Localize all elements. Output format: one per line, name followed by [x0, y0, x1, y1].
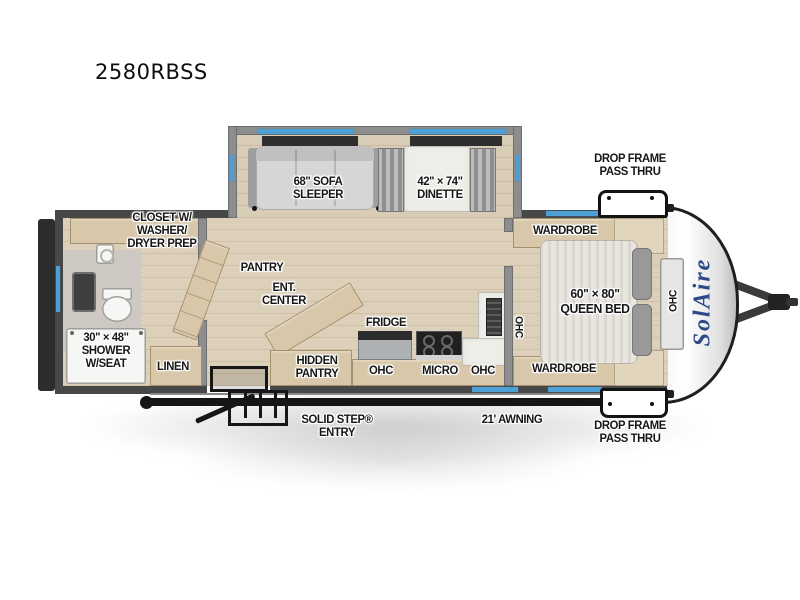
- pass-thru-bottom-dot-right: [650, 402, 654, 406]
- window-behind-sofa: [262, 136, 358, 146]
- slideout-window-side-left: [230, 155, 234, 181]
- rear-bumper: [38, 219, 55, 391]
- label-ohc-fridge: OHC: [369, 364, 393, 377]
- awning-rail-line: [150, 393, 640, 395]
- dinette-bench-right: [470, 148, 496, 212]
- label-ohc-micro: OHC: [471, 364, 495, 377]
- entry-step-well: [210, 366, 268, 392]
- stove-front: [416, 355, 462, 360]
- label-queen-bed: 60" × 80"QUEEN BED: [560, 286, 629, 316]
- toilet-bowl: [102, 296, 132, 322]
- shower-hinge-left: [70, 331, 74, 335]
- step-rung-3: [274, 392, 277, 418]
- bedroom-wall-top-stub: [504, 218, 513, 232]
- step-rung-2: [259, 392, 262, 418]
- label-fridge: FRIDGE: [366, 316, 406, 329]
- label-entry: SOLID STEP®ENTRY: [301, 413, 372, 439]
- window-behind-dinette: [410, 136, 502, 146]
- counter-horizontal: [462, 338, 508, 366]
- fridge-top-band: [358, 331, 412, 340]
- label-ohc-kitchen-wall: OHC: [512, 316, 525, 338]
- label-pass-thru-bottom: DROP FRAMEPASS THRU: [594, 419, 666, 445]
- label-ent-center: ENT.CENTER: [262, 281, 306, 307]
- label-pass-thru-top: DROP FRAMEPASS THRU: [594, 152, 666, 178]
- label-pantry: PANTRY: [241, 261, 284, 274]
- bedroom-window-top: [546, 211, 600, 216]
- ground-shadow-soft: [180, 430, 600, 490]
- label-micro: MICRO: [422, 364, 458, 377]
- awning-bar: [146, 398, 642, 406]
- window-bottom-bedroom: [548, 387, 602, 392]
- pillow-top: [632, 248, 652, 300]
- label-closet: CLOSET W/WASHER/DRYER PREP: [127, 211, 196, 250]
- pass-thru-door-top: [598, 190, 668, 218]
- awning-end-cap: [140, 396, 153, 409]
- label-wardrobe-bottom: WARDROBE: [532, 362, 596, 375]
- slideout-window-side-right: [516, 155, 520, 181]
- floorplan-canvas: 2580RBSS: [0, 0, 800, 600]
- dinette-bench-left: [378, 148, 404, 212]
- window-bottom-kitchen: [472, 387, 518, 392]
- slideout-window-top-right: [410, 129, 506, 134]
- kitchen-sink: [486, 298, 502, 336]
- sofa-dot-left: [252, 206, 257, 211]
- shower-hinge-right: [139, 331, 143, 335]
- brand-logo: SolAire: [690, 258, 717, 347]
- label-wardrobe-top: WARDROBE: [533, 224, 597, 237]
- label-dinette: 42" × 74"DINETTE: [417, 175, 463, 201]
- pass-thru-top-dot-right: [650, 196, 654, 200]
- sofa-back-cushion: [256, 146, 374, 161]
- medicine-cabinet: [72, 272, 96, 312]
- entry-steps: [228, 390, 288, 426]
- label-shower: 30" × 48"SHOWERW/SEAT: [82, 331, 131, 370]
- slideout-window-top-left: [258, 129, 354, 134]
- pass-thru-bottom-dot-left: [608, 402, 612, 406]
- model-number: 2580RBSS: [95, 60, 208, 84]
- pass-thru-top-dot-left: [607, 196, 611, 200]
- label-ohc-front: OHC: [668, 290, 681, 312]
- washer-door-icon: [100, 249, 114, 263]
- pillow-bottom: [632, 304, 652, 356]
- label-linen: LINEN: [157, 360, 189, 373]
- label-awning: 21' AWNING: [482, 413, 543, 426]
- label-hidden-pantry: HIDDENPANTRY: [296, 354, 339, 380]
- label-sofa: 68" SOFASLEEPER: [293, 175, 343, 201]
- rear-window: [56, 266, 60, 312]
